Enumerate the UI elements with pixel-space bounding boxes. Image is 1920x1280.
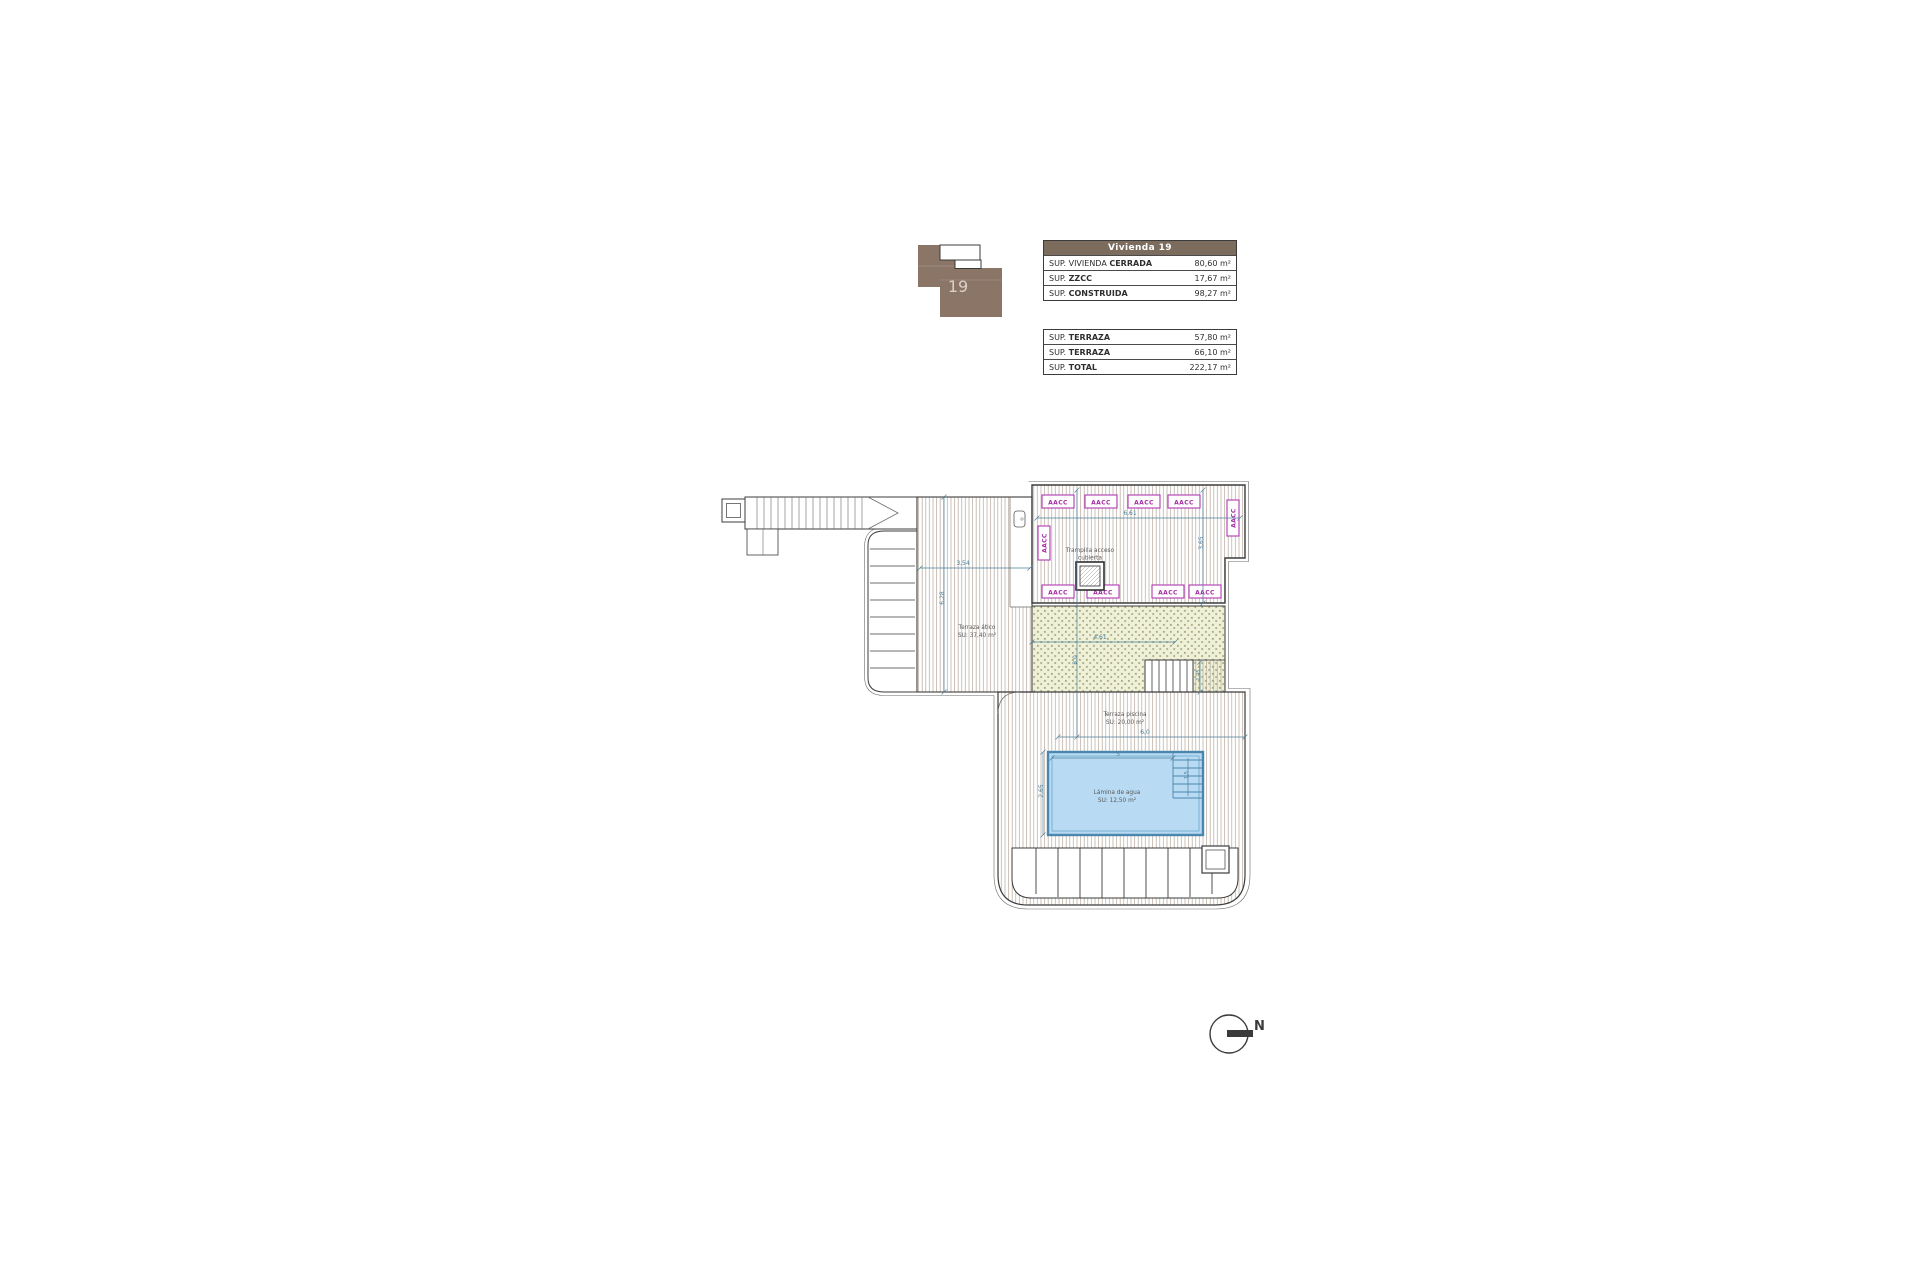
terrace-piscina: Terraza piscina SU: 20,00 m² Lámina de a… [998,692,1245,905]
svg-text:6,61: 6,61 [1123,510,1137,517]
svg-text:1,5: 1,5 [1184,771,1190,779]
floor-plan-svg: Terraza ático SU: 37,40 m² AACC AACC AAC… [690,430,1310,1070]
svg-text:AACC: AACC [1048,500,1068,507]
area-value: 222,17 m² [1189,363,1231,372]
aacc-unit: AACC [1038,526,1050,560]
terrace-table: SUP. TERRAZA 57,80 m² SUP. TERRAZA 66,10… [1043,329,1237,375]
svg-text:5: 5 [1116,751,1120,758]
svg-text:AACC: AACC [1134,500,1154,507]
area-value: 66,10 m² [1195,348,1231,357]
north-label: N [1254,1019,1265,1034]
page: { "key_plan": { "unit": "19" }, "tables"… [0,0,1920,1280]
svg-text:6,0: 6,0 [1140,729,1150,736]
pool: Lámina de agua SU: 12,50 m² [1048,752,1203,835]
summary-table: Vivienda 19 SUP. VIVIENDA CERRADA 80,60 … [1043,240,1237,301]
terrace-atico: Terraza ático SU: 37,40 m² [917,497,1032,692]
svg-text:AACC: AACC [1091,500,1111,507]
north-arrow: N [1210,1015,1265,1053]
svg-text:AACC: AACC [1174,500,1194,507]
stairs [1145,660,1225,692]
north-arrow-bar [1227,1030,1253,1037]
planter-box [722,499,745,522]
aacc-unit: AACC [1189,585,1221,598]
svg-text:2,65: 2,65 [1038,784,1045,798]
key-plan-unit-number: 19 [948,277,968,296]
table-row: SUP. TERRAZA 57,80 m² [1044,330,1236,344]
pool-label: Lámina de agua [1094,789,1141,796]
area-value: 17,67 m² [1195,274,1231,283]
table-row: SUP. TERRAZA 66,10 m² [1044,344,1236,359]
trampilla-label: Trampilla acceso [1065,548,1115,554]
aacc-unit: AACC [1152,585,1184,598]
pool-area: SU: 12,50 m² [1098,797,1136,804]
key-plan-void-1 [940,245,980,260]
aacc-unit: AACC [1085,495,1117,508]
svg-text:1,05: 1,05 [1196,669,1202,680]
area-value: 98,27 m² [1195,289,1231,298]
svg-text:AACC: AACC [1048,590,1068,597]
terrace-piscina-area: SU: 20,00 m² [1106,719,1144,726]
table-row: SUP. ZZCC 17,67 m² [1044,270,1236,285]
terrace-atico-area: SU: 37,40 m² [958,632,996,639]
table-row: SUP. CONSTRUIDA 98,27 m² [1044,285,1236,300]
svg-text:6,28: 6,28 [939,591,946,605]
table-row: SUP. VIVIENDA CERRADA 80,60 m² [1044,255,1236,270]
louver-band-left [868,531,917,692]
aacc-unit: AACC [1168,495,1200,508]
walkway-step [747,529,778,555]
svg-text:4,61: 4,61 [1093,634,1107,641]
trampilla-label: cubierta [1078,556,1102,562]
roof-block: AACC AACC AACC AACC AACC AACC AACC AACC … [1032,485,1245,603]
key-plan-void-2 [955,260,981,269]
aacc-unit: AACC [1042,495,1074,508]
summary-table-header: Vivienda 19 [1044,241,1236,255]
area-value: 80,60 m² [1195,259,1231,268]
area-value: 57,80 m² [1195,333,1231,342]
terrace-piscina-label: Terraza piscina [1102,712,1147,718]
svg-text:AACC: AACC [1158,590,1178,597]
svg-text:AACC: AACC [1042,533,1049,553]
aacc-unit: AACC [1128,495,1160,508]
table-row: SUP. TOTAL 222,17 m² [1044,359,1236,374]
svg-text:AACC: AACC [1195,590,1215,597]
svg-text:3,65: 3,65 [1198,536,1205,550]
aacc-unit: AACC [1042,585,1074,598]
key-plan-icon: 19 [915,240,1005,320]
svg-text:8,0: 8,0 [1072,655,1079,665]
terrace-atico-label: Terraza ático [958,624,996,631]
svg-text:3,54: 3,54 [956,560,970,567]
